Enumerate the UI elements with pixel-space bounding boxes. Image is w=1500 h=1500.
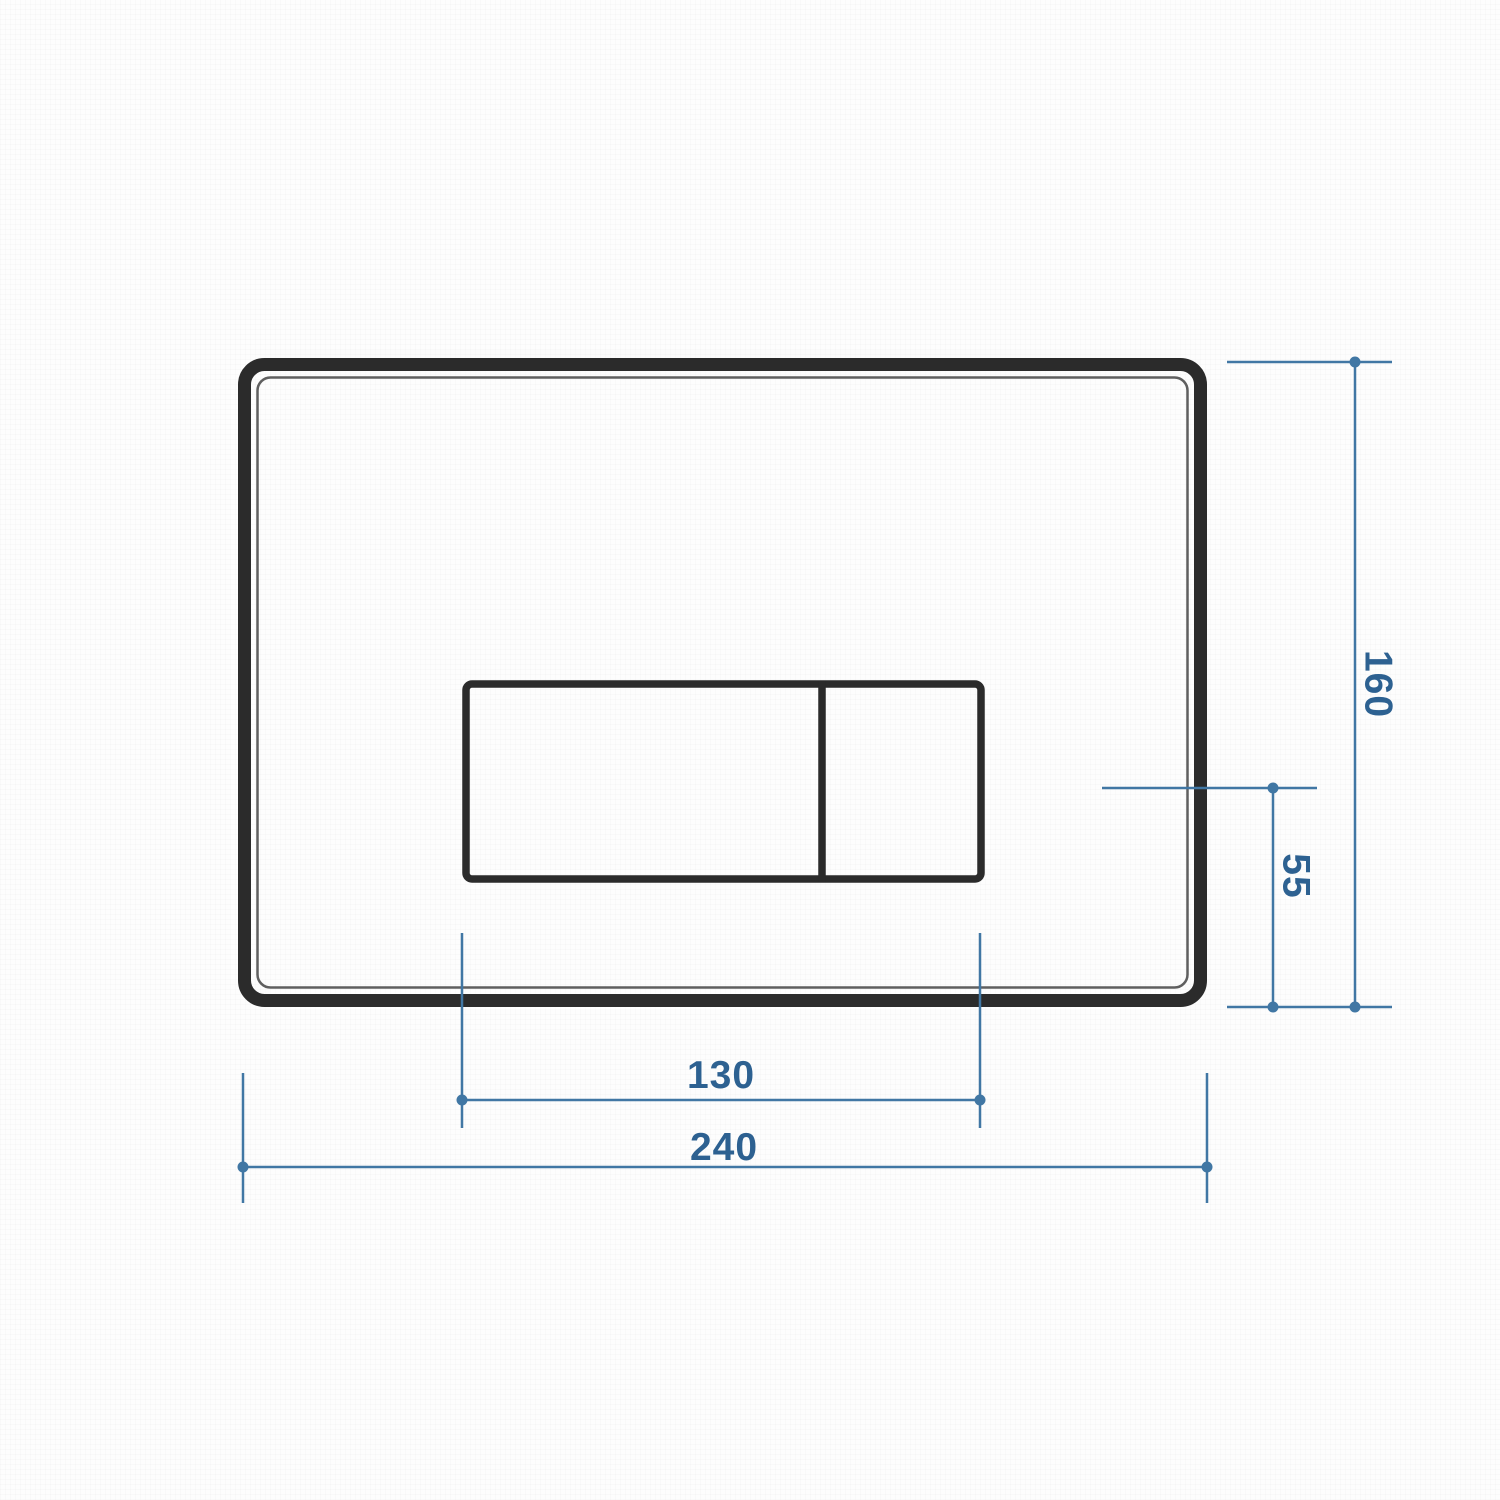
dim-dot <box>1202 1162 1213 1173</box>
dim-dot <box>238 1162 249 1173</box>
technical-drawing: 160 55 130 240 <box>0 0 1500 1500</box>
dim-dot <box>1350 357 1361 368</box>
dim-dot <box>1268 1002 1279 1013</box>
dim-dot <box>975 1095 986 1106</box>
dim-dot <box>457 1095 468 1106</box>
dim-label-plate-height: 160 <box>1357 650 1400 718</box>
dim-label-button-offset: 55 <box>1275 853 1318 898</box>
button-group-outline <box>466 684 981 879</box>
dim-dot <box>1268 783 1279 794</box>
dim-label-plate-width: 240 <box>690 1126 758 1169</box>
dim-dot <box>1350 1002 1361 1013</box>
dim-label-button-width: 130 <box>687 1054 755 1097</box>
drawing-svg: 160 55 130 240 <box>0 0 1500 1500</box>
